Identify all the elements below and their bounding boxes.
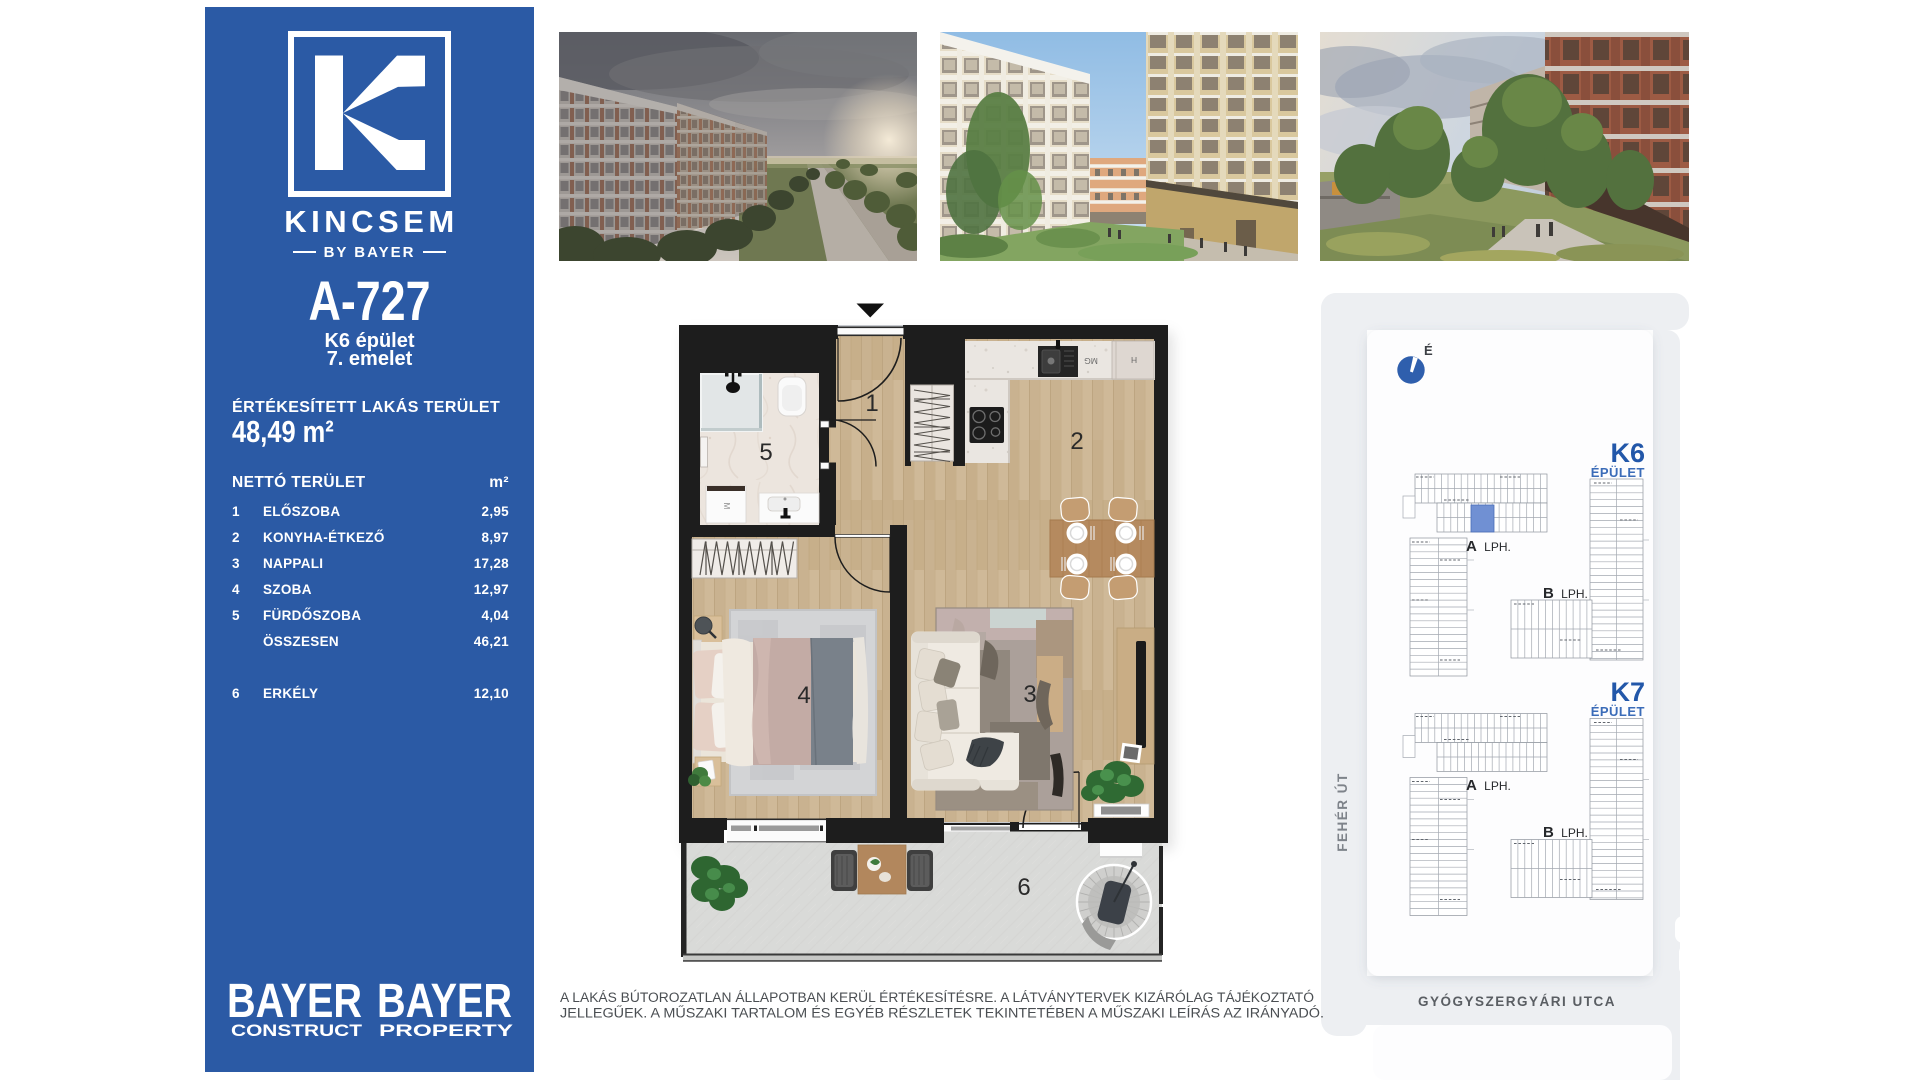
svg-text:JELLEGŰEK. A MŰSZAKI TARTALOM: JELLEGŰEK. A MŰSZAKI TARTALOM ÉS EGYÉB R…: [560, 1006, 1324, 1021]
svg-text:A LAKÁS BÚTOROZATLAN ÁLLAPOTBA: A LAKÁS BÚTOROZATLAN ÁLLAPOTBAN KERÜL ÉR…: [560, 990, 1314, 1005]
